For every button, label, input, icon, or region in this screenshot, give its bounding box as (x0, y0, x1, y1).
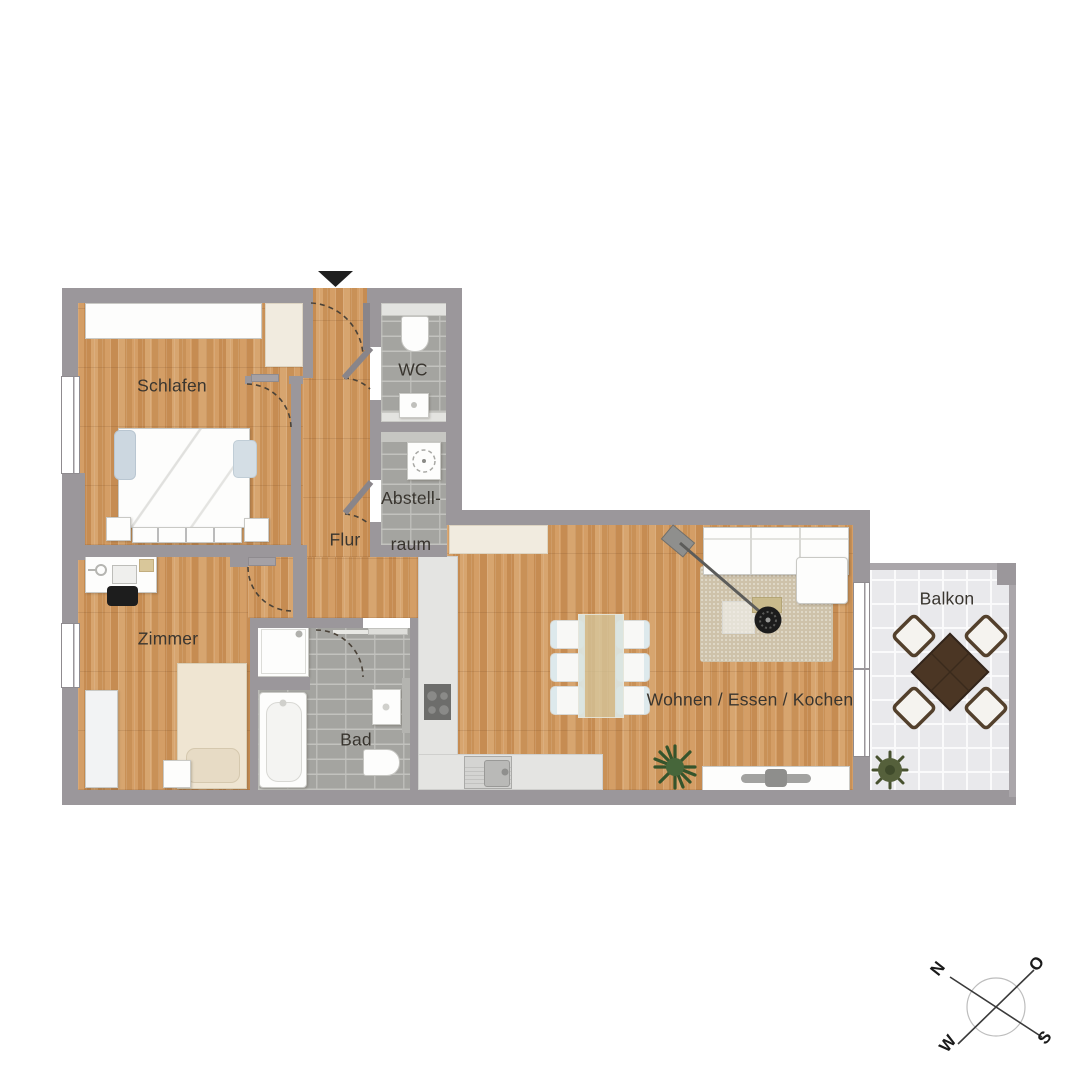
door-leaf (345, 482, 371, 513)
door-leaf (248, 557, 276, 566)
balcony-table-set (893, 615, 1007, 729)
entrance-arrow-icon (318, 271, 353, 287)
room-label-wohnen: Wohnen / Essen / Kochen (647, 689, 854, 712)
door-swing (316, 630, 363, 677)
room-label-wc: WC (398, 359, 428, 382)
door-swing (345, 514, 369, 524)
room-label-zimmer: Zimmer (138, 628, 199, 651)
compass-n: N (926, 958, 949, 979)
door-swing (311, 303, 363, 355)
faucet-icon (280, 700, 287, 707)
door-swing (344, 378, 370, 389)
washing-machine-drum (422, 459, 426, 463)
compass-s: S (1034, 1027, 1056, 1048)
faucet-icon (411, 402, 417, 408)
compass-o: O (1025, 953, 1048, 975)
compass-rose: N O S W (926, 953, 1055, 1056)
plan-overlay: N O S W (0, 0, 1080, 1080)
door-leaf (344, 348, 371, 378)
door-swing (247, 384, 291, 428)
faucet-icon (502, 769, 509, 776)
floor-plan: Schlafen Zimmer Flur WC Abstell- raum Ba… (0, 0, 1080, 1080)
compass-w: W (935, 1031, 960, 1056)
door-leaf (363, 303, 370, 350)
room-label-flur: Flur (330, 529, 361, 552)
floor-lamp-icon (661, 525, 781, 633)
room-label-abstellraum: Abstell- raum (381, 464, 441, 556)
plant-icon (655, 746, 695, 788)
room-label-bad: Bad (340, 729, 372, 752)
door-swing (248, 567, 292, 611)
plant-icon (873, 752, 907, 788)
door-leaf (368, 628, 408, 635)
abstellraum-line1: Abstell- (381, 488, 441, 508)
desk-lamp-icon (96, 565, 106, 575)
room-label-schlafen: Schlafen (137, 375, 207, 398)
faucet-icon (383, 704, 390, 711)
door-leaf (251, 374, 279, 382)
abstellraum-line2: raum (391, 534, 432, 554)
room-label-balkon: Balkon (920, 588, 975, 611)
shower-head-icon (296, 631, 303, 638)
